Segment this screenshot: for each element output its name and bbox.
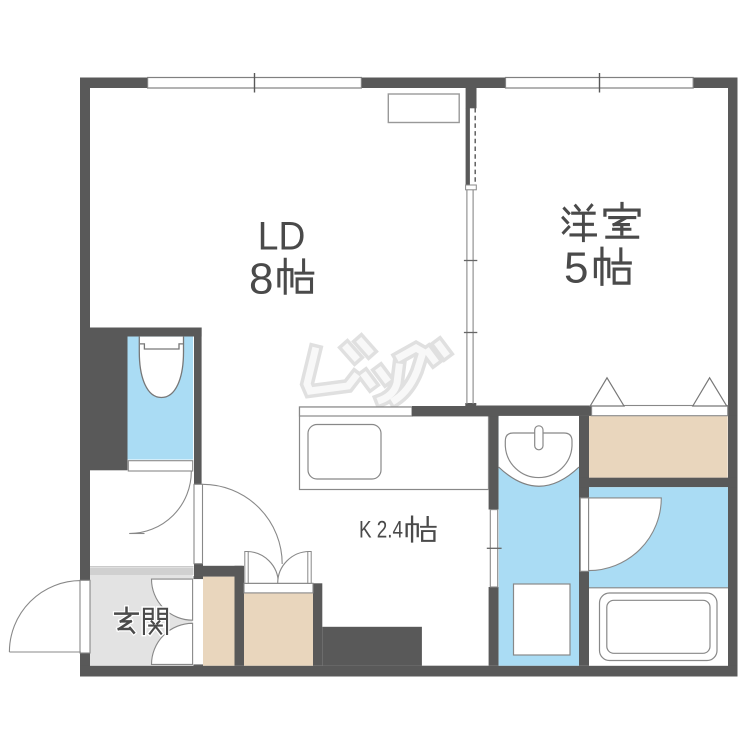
svg-text:LD: LD (258, 215, 306, 259)
svg-text:K 2.4: K 2.4 (359, 517, 403, 544)
svg-text:8: 8 (249, 255, 273, 304)
svg-text:5: 5 (564, 244, 588, 293)
